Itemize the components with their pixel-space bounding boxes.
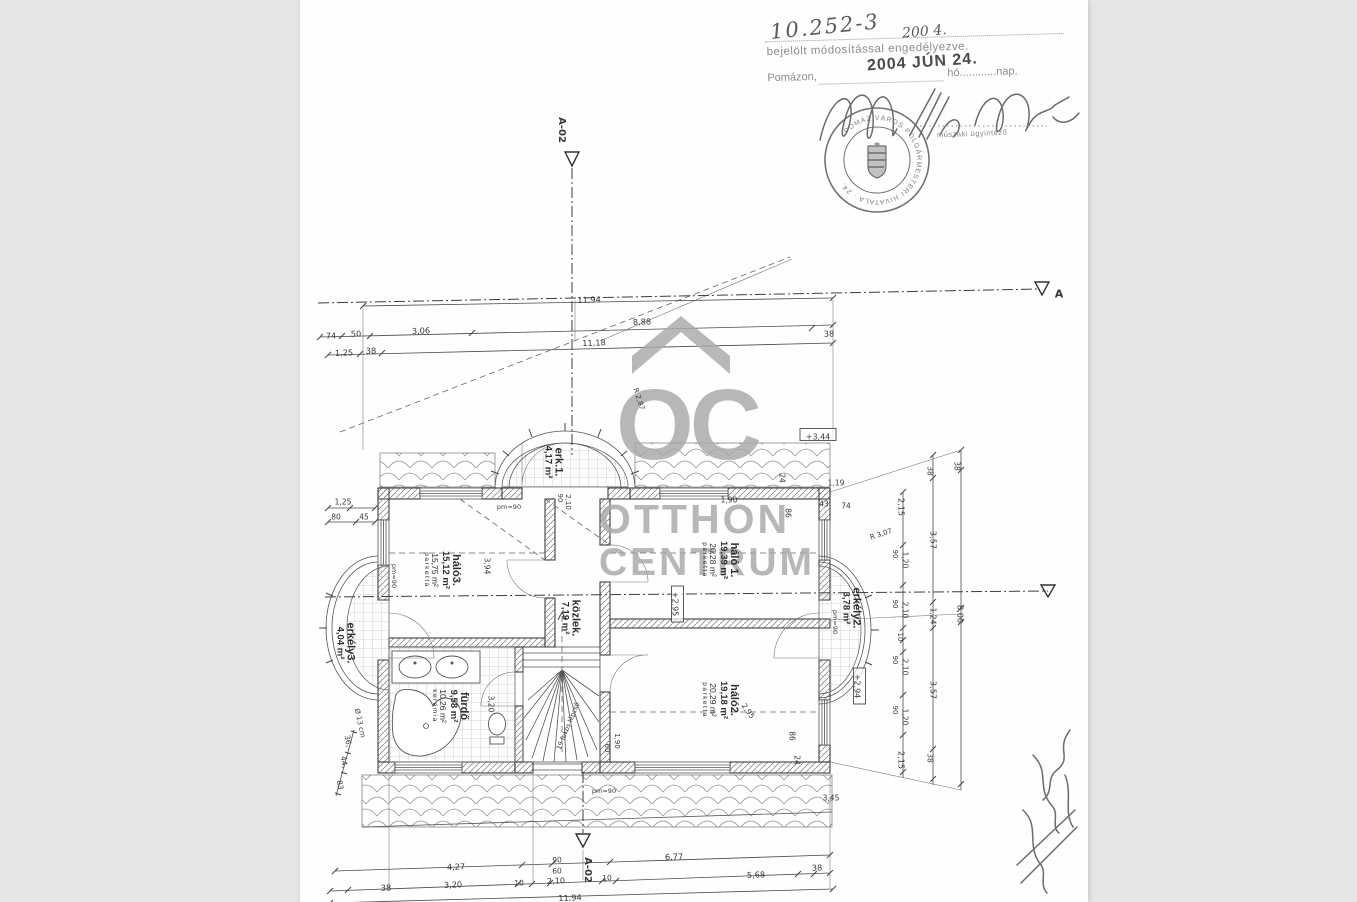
room-name: fürdő <box>458 689 470 723</box>
dim-label: pm=90 <box>390 564 398 588</box>
room-name: erkély2. <box>850 588 862 629</box>
room-label-erkely3: erkély3.4,04 m² <box>334 623 357 664</box>
dim-label: 3,45 <box>823 793 840 802</box>
room-label-halo3: háló3.15,12 m²15,75 m²parketta <box>422 551 462 589</box>
dim-label: 86 <box>788 731 797 741</box>
dim-label: 2,10 <box>901 659 910 676</box>
dim-label: 3,20 <box>487 696 496 713</box>
dim-label: 3,57 <box>928 681 938 699</box>
dim-label: 38 <box>366 345 377 355</box>
section-marker-a02-top: A-02 <box>556 117 567 143</box>
room-area: 4,17 m² <box>542 446 553 479</box>
dotted-rule <box>819 79 944 84</box>
room-area2: 20,29 m² <box>707 681 717 719</box>
dim-label: 80 <box>331 512 341 521</box>
dim-label: 2,95 <box>740 702 757 721</box>
month-day-labels: hó............nap. <box>947 65 1018 79</box>
room-area: 19,18 m² <box>717 681 728 719</box>
dim-label: 1,19 <box>828 478 845 487</box>
dim-label: 90 <box>556 494 564 503</box>
dim-label: +2,94 <box>852 674 861 699</box>
room-area: 7,19 m² <box>559 600 570 637</box>
dim-label: R 3,07 <box>869 527 893 542</box>
dim-label: 38 <box>926 753 935 763</box>
dim-label: 1,25 <box>335 497 352 506</box>
room-label-halo2: háló2.19,18 m²20,29 m²parketta <box>700 681 740 719</box>
dim-label: 43 <box>819 499 829 508</box>
approval-block: 10.252-3 200 4. bejelölt módosítással en… <box>754 3 1087 122</box>
room-name: közlek. <box>569 600 581 637</box>
dim-label: 1,90 <box>613 733 621 749</box>
scan-page: POMÁZ VÁROS POLGÁRMESTERI HIVATALA · 24. <box>300 0 1088 902</box>
dim-label: 74 <box>326 330 337 340</box>
room-area: 9,58 m² <box>447 689 458 723</box>
dim-label: 24 <box>793 755 802 765</box>
dim-label: 3,57 <box>928 531 938 549</box>
section-marker-a02-bottom: A-02 <box>582 857 593 883</box>
room-area: 4,04 m² <box>334 623 345 664</box>
dim-label: 8,00 <box>955 605 965 623</box>
room-area2: 15,75 m² <box>429 551 439 589</box>
room-name: erkély3. <box>344 623 356 664</box>
room-label-kozlek: közlek.7,19 m² <box>559 600 582 637</box>
room-label-furdo: fürdő9,58 m²10,26 m²kerámia <box>430 689 470 723</box>
place-label: Pomázon, <box>767 71 817 84</box>
screenshot-root: { "colors": { "background": "#e5e5e5", "… <box>0 0 1357 902</box>
dim-label: 11,94 <box>558 892 582 902</box>
room-label-halo1: háló 1.19,39 m²20,28 m²parketta <box>700 541 740 579</box>
room-label-erk1: erk.1.4,17 m² <box>542 446 565 479</box>
dim-label: 83 <box>335 780 346 791</box>
dim-label: +3,44 <box>806 433 831 442</box>
room-area2: 10,26 m² <box>437 689 447 723</box>
dim-label: 38 <box>953 461 962 471</box>
dim-label: pm=90 <box>831 610 839 634</box>
dim-label: 10 <box>896 633 904 642</box>
room-area: 19,39 m² <box>717 541 728 579</box>
dim-label: 90 <box>891 550 899 559</box>
dim-label: 3,94 <box>483 558 492 575</box>
room-floor: parketta <box>422 551 429 589</box>
dim-label: 86 <box>784 508 793 518</box>
dim-label: 10 <box>602 873 612 882</box>
dim-label: 1,25 <box>335 347 354 358</box>
dim-label: 11,18 <box>582 337 606 348</box>
dim-label: 10 <box>514 878 524 887</box>
dim-label: 90 <box>891 706 899 715</box>
room-name: erk.1. <box>552 446 564 479</box>
dim-label: 8,88 <box>633 316 652 327</box>
dim-label: 45 <box>359 512 369 521</box>
dim-label: 50 <box>351 328 362 338</box>
dim-label: 3,06 <box>412 325 431 336</box>
dim-label: 38 <box>812 862 823 872</box>
room-name: háló3. <box>450 551 462 589</box>
dim-label: 2,10 <box>564 494 572 510</box>
dim-label: 36, <box>343 734 354 747</box>
dim-label: R 2,87 <box>631 387 646 411</box>
dim-label: 1,20 <box>901 709 910 726</box>
dim-label: 38 <box>824 328 835 338</box>
room-floor: parketta <box>700 541 707 579</box>
dim-label: 11,94 <box>577 294 601 305</box>
dim-label: 44, <box>339 755 350 768</box>
dim-label: 38 <box>381 882 392 892</box>
room-name: háló 1. <box>728 541 740 579</box>
case-number-2: 200 4. <box>902 22 948 42</box>
dim-label: 74 <box>841 501 851 510</box>
dim-label: pm=90 <box>497 503 521 511</box>
dim-label: 3,20 <box>444 879 463 890</box>
dim-label: 6,77 <box>665 851 684 862</box>
dim-label: 60 <box>552 866 562 875</box>
dim-label: 19 fokos lépcső <box>554 701 581 751</box>
dim-label: +2,95 <box>670 592 679 617</box>
dim-label: Ø 13 cm <box>353 708 367 739</box>
dim-label: 24 <box>778 473 787 483</box>
dim-label: 2,10 <box>901 602 910 619</box>
dim-label: 60 <box>603 744 611 753</box>
dim-label: 4,27 <box>447 861 466 872</box>
dim-label: 90 <box>891 600 899 609</box>
section-marker-a-right: A <box>1055 288 1064 301</box>
dim-label: 38 <box>926 466 935 476</box>
dim-label: 2,15 <box>896 751 906 769</box>
room-name: háló2. <box>728 681 740 719</box>
dim-label: 1,24 <box>929 608 938 625</box>
room-area: 3,78 m² <box>840 588 851 629</box>
dim-label: 2,15 <box>896 498 906 516</box>
dim-label: 1,90 <box>721 495 738 504</box>
dim-label: 90 <box>891 656 899 665</box>
dim-label: 1,20 <box>901 552 910 569</box>
dim-label: 90 <box>552 855 562 864</box>
dim-label: pm=90 <box>592 787 616 795</box>
room-area: 15,12 m² <box>439 551 450 589</box>
room-area2: 20,28 m² <box>707 541 717 579</box>
room-floor: parketta <box>700 681 707 719</box>
dim-label: 5,68 <box>747 869 766 880</box>
room-label-erkely2: erkély2.3,78 m² <box>840 588 863 629</box>
dim-label: 2,10 <box>547 875 566 886</box>
room-floor: kerámia <box>430 689 437 723</box>
